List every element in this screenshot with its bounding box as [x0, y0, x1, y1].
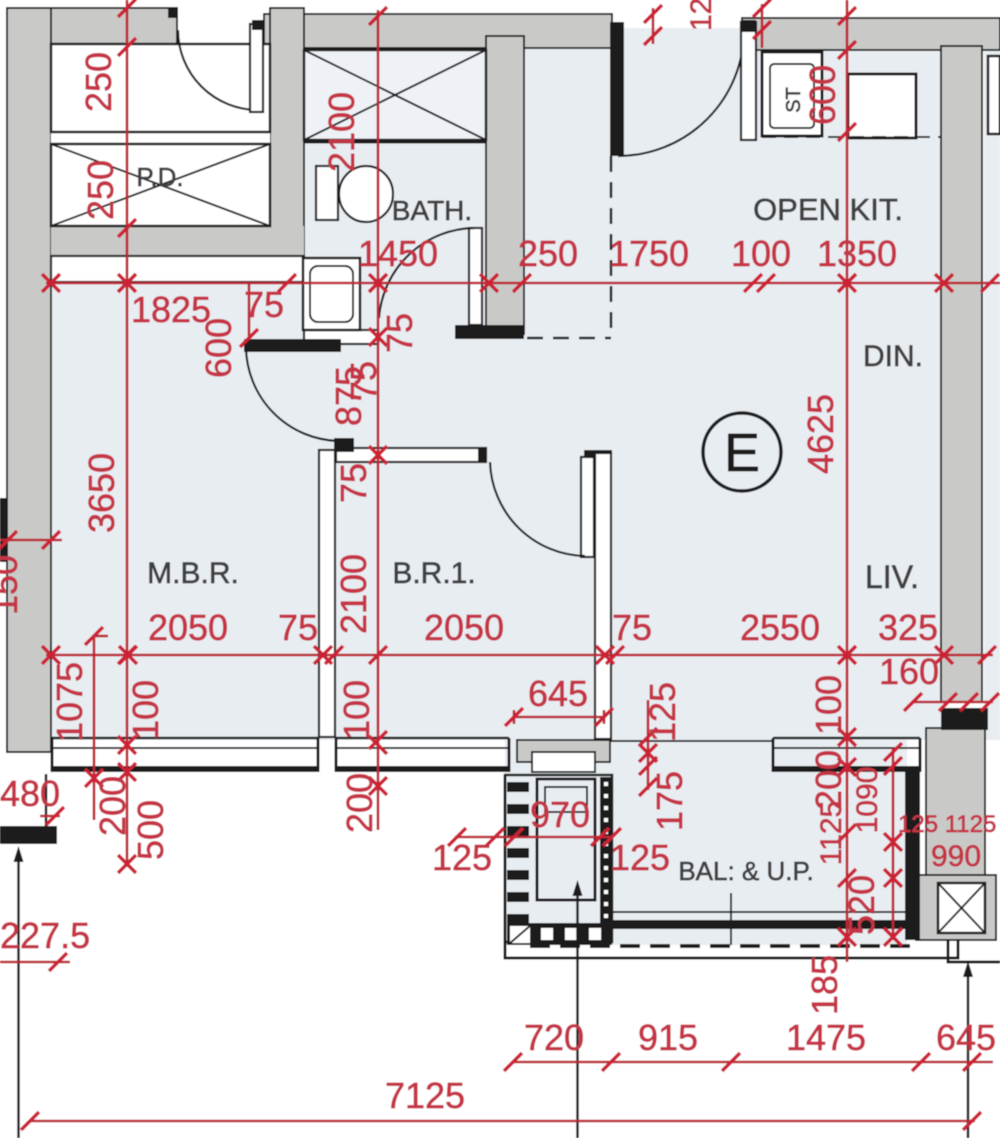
svg-text:200: 200 [92, 776, 133, 836]
svg-text:990: 990 [931, 840, 981, 873]
svg-text:150: 150 [0, 555, 25, 615]
svg-text:1475: 1475 [786, 1017, 866, 1058]
svg-text:75: 75 [343, 361, 384, 401]
svg-text:600: 600 [802, 65, 843, 125]
svg-text:645: 645 [528, 673, 588, 714]
svg-text:125: 125 [610, 837, 670, 878]
svg-text:7125: 7125 [385, 1075, 465, 1116]
svg-text:LIV.: LIV. [865, 559, 919, 595]
svg-text:DIN.: DIN. [863, 340, 923, 373]
svg-text:2050: 2050 [148, 607, 228, 648]
svg-text:4625: 4625 [800, 394, 841, 474]
svg-text:1090: 1090 [851, 767, 884, 834]
svg-text:1125: 1125 [815, 801, 848, 866]
svg-text:1350: 1350 [817, 233, 897, 274]
svg-text:325: 325 [878, 607, 938, 648]
svg-text:250: 250 [80, 160, 121, 220]
svg-text:1750: 1750 [609, 233, 689, 274]
svg-text:720: 720 [524, 1017, 584, 1058]
svg-text:100: 100 [336, 680, 377, 740]
svg-text:227.5: 227.5 [0, 915, 90, 956]
svg-text:BAL: & U.P.: BAL: & U.P. [678, 856, 813, 886]
svg-text:125: 125 [642, 682, 683, 742]
svg-text:2100: 2100 [321, 92, 362, 172]
svg-text:1450: 1450 [358, 233, 438, 274]
svg-text:75: 75 [379, 313, 420, 353]
svg-text:915: 915 [638, 1017, 698, 1058]
svg-text:P.D.: P.D. [136, 162, 183, 192]
svg-text:2550: 2550 [740, 607, 820, 648]
svg-text:2050: 2050 [424, 607, 504, 648]
svg-text:125 1125: 125 1125 [898, 811, 996, 838]
svg-text:185: 185 [804, 955, 845, 1015]
svg-text:100: 100 [731, 233, 791, 274]
svg-text:160: 160 [879, 651, 939, 692]
svg-text:480: 480 [0, 773, 60, 814]
svg-text:BATH.: BATH. [392, 195, 472, 226]
svg-text:175: 175 [649, 771, 690, 831]
svg-text:M.B.R.: M.B.R. [147, 557, 239, 590]
svg-text:970: 970 [530, 794, 590, 835]
svg-text:125: 125 [685, 0, 718, 31]
svg-text:3650: 3650 [81, 453, 122, 533]
svg-text:75: 75 [244, 284, 284, 325]
svg-text:500: 500 [130, 800, 171, 860]
svg-text:75: 75 [612, 607, 652, 648]
svg-text:OPEN KIT.: OPEN KIT. [753, 192, 903, 227]
svg-text:520: 520 [841, 875, 882, 935]
svg-text:200: 200 [339, 773, 380, 833]
svg-text:75: 75 [278, 607, 318, 648]
svg-text:1075: 1075 [49, 662, 90, 742]
svg-text:75: 75 [333, 463, 374, 503]
svg-text:600: 600 [198, 318, 239, 378]
svg-text:125: 125 [432, 837, 492, 878]
svg-text:250: 250 [518, 233, 578, 274]
svg-text:100: 100 [125, 680, 166, 740]
svg-text:E: E [724, 423, 760, 483]
svg-text:2100: 2100 [333, 554, 374, 634]
svg-text:645: 645 [936, 1017, 996, 1058]
svg-text:250: 250 [78, 52, 119, 112]
svg-text:100: 100 [808, 675, 849, 735]
svg-text:B.R.1.: B.R.1. [392, 557, 475, 590]
